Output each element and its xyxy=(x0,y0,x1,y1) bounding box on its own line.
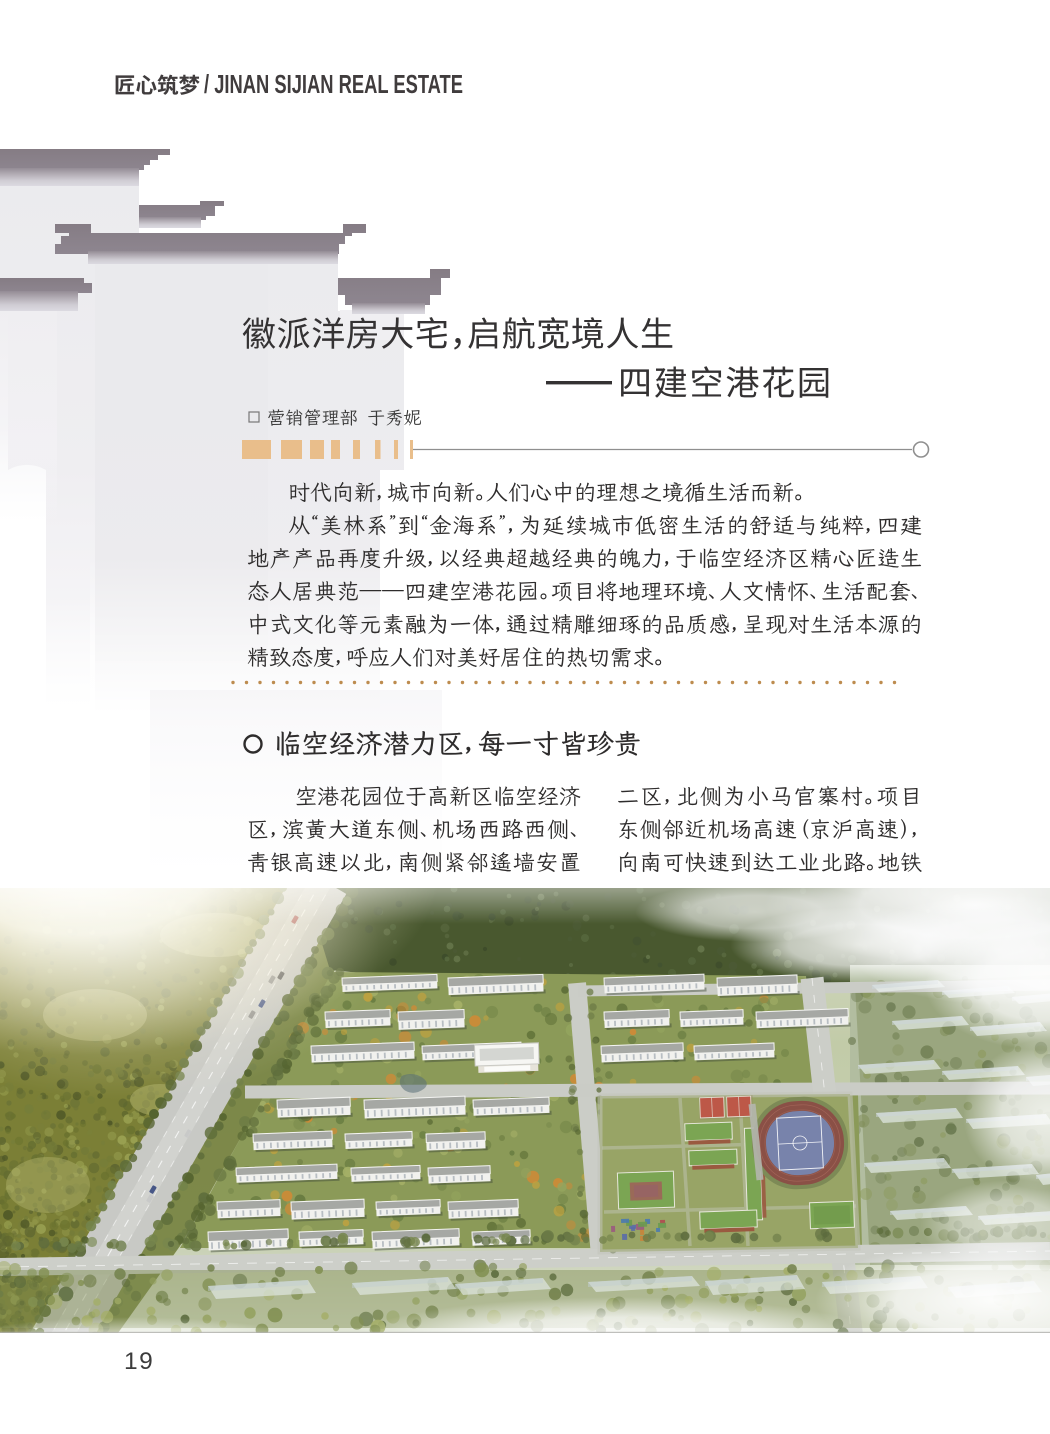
svg-text:19: 19 xyxy=(124,1348,154,1375)
svg-text:/ JINAN SIJIAN REAL ESTATE: / JINAN SIJIAN REAL ESTATE xyxy=(204,70,463,99)
